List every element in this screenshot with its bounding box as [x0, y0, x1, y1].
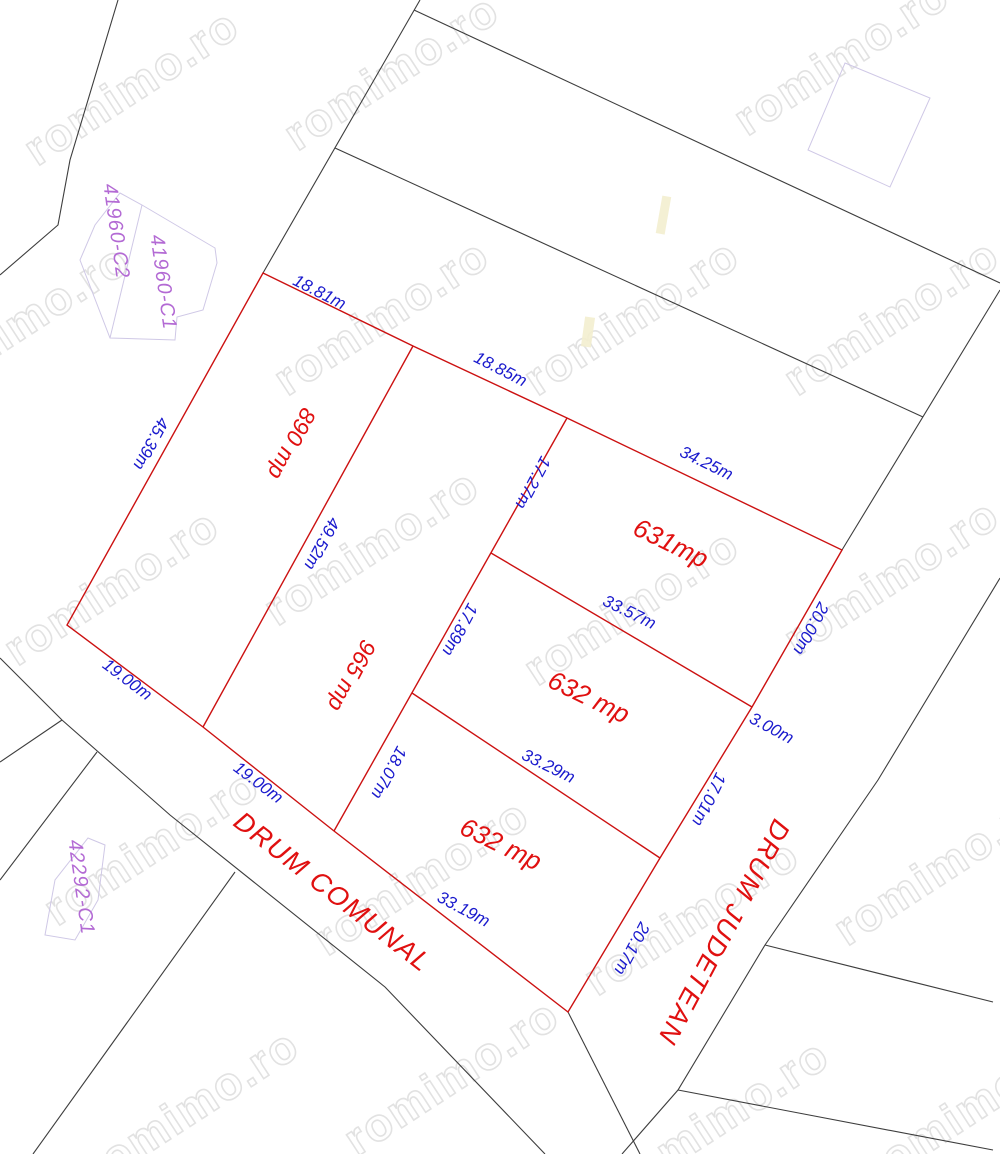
dim-18-07: 18.07m — [367, 743, 410, 802]
dim-19-00-west: 19.00m — [99, 655, 156, 704]
faint-yellow-mark — [656, 196, 671, 235]
watermark-text: romimo.ro — [274, 0, 508, 160]
watermark-text: romimo.ro — [74, 1018, 308, 1154]
neighbor-line-west-1 — [0, 720, 62, 762]
watermark-text: romimo.ro — [854, 1018, 1000, 1154]
area-label-632mp-mid: 632 mp — [543, 664, 634, 729]
neighbor-line-east-1 — [765, 945, 993, 1002]
survey-plan-svg: romimo.ro romimo.ro romimo.ro romimo.ro … — [0, 0, 1000, 1154]
dim-18-85: 18.85m — [471, 348, 530, 391]
road-edge-judetean-near-south — [568, 1012, 640, 1154]
watermark-layer: romimo.ro romimo.ro romimo.ro romimo.ro … — [0, 0, 1000, 1154]
watermark-text: romimo.ro — [514, 228, 748, 405]
dim-33-19: 33.19m — [434, 887, 493, 930]
watermark-text: romimo.ro — [334, 988, 568, 1154]
watermark-text: romimo.ro — [264, 228, 498, 405]
cadastral-plan-page: romimo.ro romimo.ro romimo.ro romimo.ro … — [0, 0, 1000, 1154]
watermark-text: romimo.ro — [14, 0, 248, 175]
watermark-text: romimo.ro — [304, 788, 538, 965]
dim-17-27: 17.27m — [511, 453, 554, 512]
watermark-text: romimo.ro — [0, 498, 228, 675]
area-label-890mp: 890 mp — [262, 404, 321, 484]
dim-17-01: 17.01m — [688, 770, 730, 829]
watermark-text: romimo.ro — [254, 458, 488, 635]
watermark-text: romimo.ro — [604, 1028, 838, 1154]
dim-45-39: 45.39m — [129, 414, 172, 473]
dim-34-25: 34.25m — [677, 442, 736, 484]
cadastral-label-41960-c1: 41960-C1 — [145, 233, 180, 331]
dim-18-81: 18.81m — [290, 271, 349, 314]
watermark-text: romimo.ro — [774, 228, 1000, 405]
watermark-text: romimo.ro — [824, 778, 1000, 955]
area-label-965mp: 965 mp — [322, 636, 381, 716]
dim-33-29: 33.29m — [519, 745, 578, 787]
dim-3-00: 3.00m — [746, 709, 797, 748]
